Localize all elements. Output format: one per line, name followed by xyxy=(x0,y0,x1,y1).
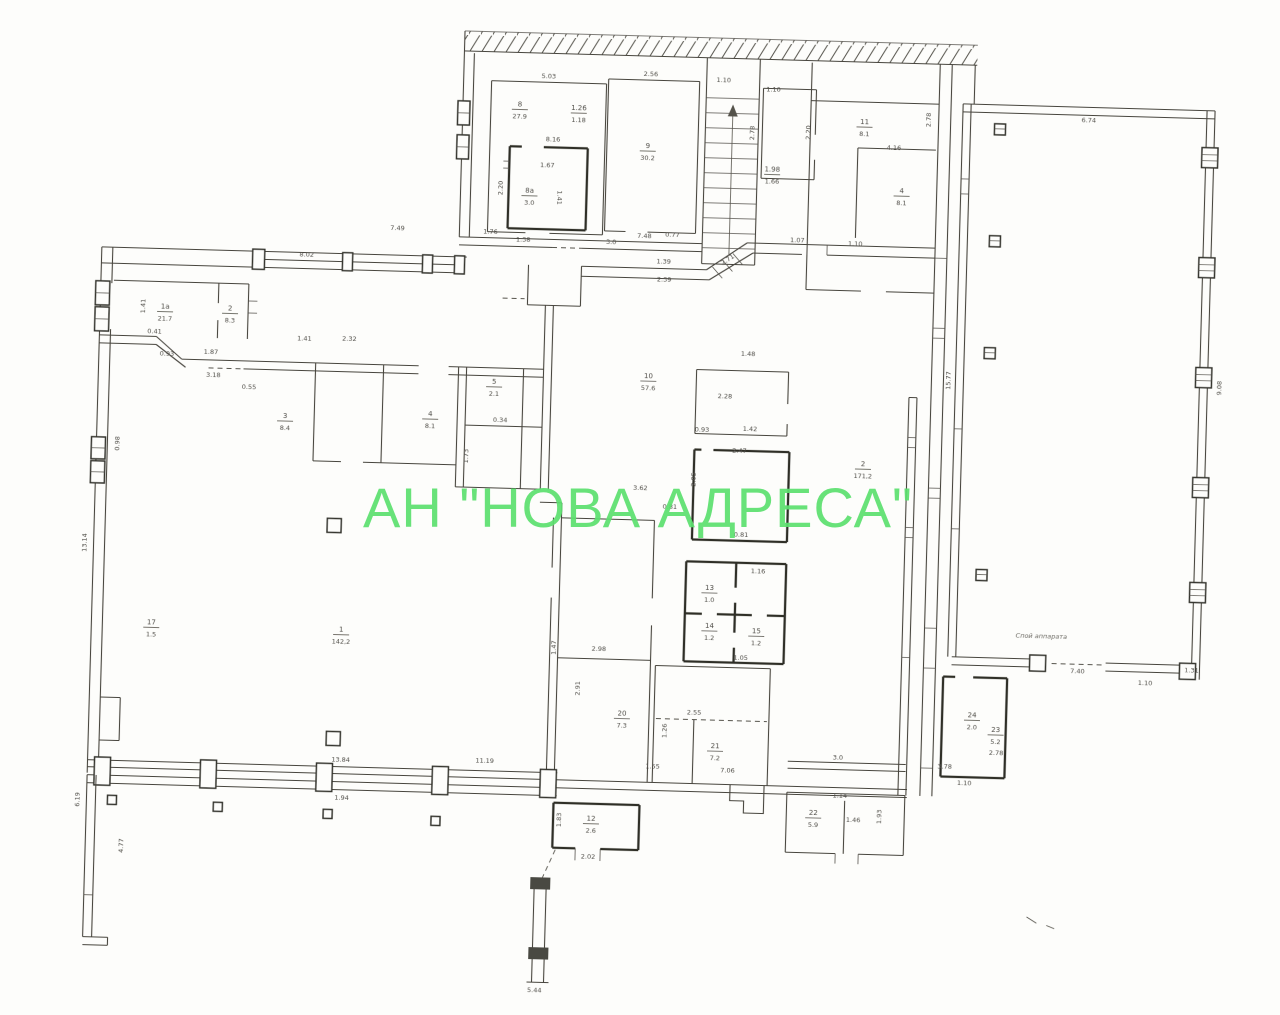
dim-text: 8.4 xyxy=(280,424,291,432)
dim-text: 20 xyxy=(617,709,626,717)
dim-text: 1.55 xyxy=(645,762,660,770)
large-hall xyxy=(99,512,346,747)
dim-text: 2.6 xyxy=(585,827,596,835)
dim-text: 3.0 xyxy=(606,238,617,246)
dim-text: 4 xyxy=(428,410,433,418)
dim-text: 2 xyxy=(861,460,866,468)
staircase xyxy=(702,58,761,265)
dim-text: 11.19 xyxy=(475,757,494,766)
top-rooms-block xyxy=(453,53,940,293)
dim-text: 7.2 xyxy=(710,754,721,762)
stray-marks xyxy=(1026,917,1054,929)
floorplan-canvas: 5.032.561.101.108.161.671.412.201.761.38… xyxy=(0,0,1280,1015)
dim-text: 0.98 xyxy=(113,436,121,451)
dim-text: 0.93 xyxy=(160,350,175,358)
dim-text: 6.19 xyxy=(73,792,81,807)
dim-text: 2.47 xyxy=(732,447,747,455)
dim-text: 2.55 xyxy=(687,708,702,716)
bottom-right-rooms xyxy=(785,672,1007,868)
dim-text: 1.48 xyxy=(741,350,756,358)
dim-text: 142,2 xyxy=(332,637,351,646)
dim-text: 22 xyxy=(809,809,818,817)
dim-text: 1.10 xyxy=(957,779,972,787)
dim-text: 1.47 xyxy=(550,640,558,655)
dim-text: 8.1 xyxy=(859,130,870,138)
bottom-annex-room xyxy=(526,802,639,985)
dim-text: 5.9 xyxy=(808,821,819,829)
dim-text: 17 xyxy=(147,618,156,626)
dim-text: 1.31 xyxy=(1184,666,1199,674)
dim-text: 11 xyxy=(860,118,869,126)
dim-text: 7.49 xyxy=(390,224,405,232)
dim-text: 1.42 xyxy=(743,425,758,433)
dim-text: 1.41 xyxy=(555,190,563,205)
dim-text: 21.7 xyxy=(158,314,173,322)
dim-text: 8.3 xyxy=(225,316,236,324)
dim-text: 2.0 xyxy=(966,723,977,731)
hall-bottom-wall xyxy=(951,653,1195,680)
dim-text: 13.14 xyxy=(80,533,89,552)
dim-text: 5.44 xyxy=(527,986,542,994)
dim-text: 4.77 xyxy=(117,838,125,853)
hall-note-label: Спой аппарата xyxy=(1016,632,1068,641)
dim-text: 1.2 xyxy=(704,634,715,642)
dim-text: 2.20 xyxy=(804,125,812,140)
dim-text: 2.56 xyxy=(644,70,659,78)
bottom-window-wall xyxy=(86,757,907,839)
dim-text: 7.3 xyxy=(616,721,627,729)
dim-text: 1.10 xyxy=(848,240,863,248)
dim-text: 2 xyxy=(228,304,233,312)
dim-text: 2.1 xyxy=(489,390,500,398)
agency-watermark-text: АН "НОВА АДРЕСА" xyxy=(363,476,913,539)
dim-text: 0.41 xyxy=(147,327,162,335)
dim-text: 2.98 xyxy=(591,645,606,653)
hall-columns xyxy=(976,124,1006,581)
dim-text: 1.14 xyxy=(832,791,847,799)
dim-text: 4.16 xyxy=(887,144,902,152)
dim-text: 1а xyxy=(161,303,170,311)
dim-text: 1.2 xyxy=(751,639,762,647)
stair-direction-arrow xyxy=(728,104,738,116)
dim-text: 9.08 xyxy=(1215,381,1223,396)
dim-text: 1.07 xyxy=(790,236,805,244)
dim-text: 3 xyxy=(283,412,288,420)
dim-text: 13 xyxy=(705,584,714,592)
centre-east-wall xyxy=(898,397,917,795)
dim-text: 8.1 xyxy=(896,199,907,207)
dim-text: 7.06 xyxy=(720,766,735,774)
dim-text: 1.98 xyxy=(764,165,780,173)
dim-text: 1.26 xyxy=(660,723,668,738)
dim-text: 14 xyxy=(705,622,715,630)
dim-text: 1.46 xyxy=(846,816,861,824)
floorplan-scan: 5.032.561.101.108.161.671.412.201.761.38… xyxy=(0,0,1280,1015)
dim-text: 2.32 xyxy=(342,335,357,343)
dim-text: 2.78 xyxy=(989,749,1004,757)
dim-text: 7.48 xyxy=(637,232,652,240)
dim-text: 15 xyxy=(752,627,761,635)
dim-text: 57.6 xyxy=(641,384,656,392)
right-hall xyxy=(947,65,1220,680)
dim-text: 8.1 xyxy=(425,422,436,430)
dim-text: 7.40 xyxy=(1070,667,1085,675)
dim-text: 1.66 xyxy=(765,177,780,185)
dim-text: 30.2 xyxy=(640,154,655,162)
dim-text: 0.93 xyxy=(695,426,710,434)
dim-text: 1.87 xyxy=(204,348,219,356)
dim-text: 1.26 xyxy=(571,104,587,112)
east-corridor-wall xyxy=(920,64,952,796)
dim-text: 1.41 xyxy=(139,299,147,314)
dim-text: 27.9 xyxy=(512,112,527,120)
dim-text: 0.77 xyxy=(665,231,680,239)
room-number-labels: 827.9930.21.261.1848.11.981.66118.11а21.… xyxy=(138,90,1021,846)
chimney-shaft xyxy=(526,849,555,983)
dim-text: 8.02 xyxy=(299,250,314,258)
dim-text: 2.91 xyxy=(574,681,582,696)
dim-text: 1.76 xyxy=(483,228,498,236)
dim-text: 3.0 xyxy=(833,753,844,761)
dim-text: 3.78 xyxy=(937,762,952,770)
dim-text: 24 xyxy=(968,711,978,719)
dim-text: 1.10 xyxy=(766,85,781,93)
dim-text: 3.0 xyxy=(524,199,535,207)
dim-text: 1.39 xyxy=(656,257,671,265)
wc-cells xyxy=(684,561,787,664)
dim-text: 1 xyxy=(339,626,344,634)
dim-text: 6.74 xyxy=(1081,116,1096,124)
dim-text: 1.38 xyxy=(516,235,531,243)
dim-text: 12 xyxy=(587,815,596,823)
dim-text: 1.83 xyxy=(555,813,563,828)
dim-text: 1.10 xyxy=(1138,679,1153,687)
dim-text: 1.94 xyxy=(334,794,349,802)
dim-text: 1.73 xyxy=(462,449,470,464)
dim-text: 8 xyxy=(518,100,523,108)
dim-text: 1.0 xyxy=(704,596,715,604)
dim-text: 3.18 xyxy=(206,371,221,379)
dim-text: 8а xyxy=(525,187,534,195)
dim-text: 8.16 xyxy=(546,135,561,143)
dim-text: 1.18 xyxy=(571,116,586,124)
dim-text: 13.84 xyxy=(331,755,350,764)
dim-text: 5.03 xyxy=(541,72,556,80)
dim-text: 1.16 xyxy=(751,567,766,575)
dim-text: 5 xyxy=(492,378,497,386)
dim-text: 1.93 xyxy=(875,809,883,824)
dim-text: 21 xyxy=(711,742,720,750)
dim-text: 1.41 xyxy=(297,334,312,342)
dim-text: 4 xyxy=(899,187,904,195)
dim-text: 2.20 xyxy=(496,181,504,196)
dim-text: 15.77 xyxy=(944,371,953,390)
dim-text: 9 xyxy=(646,142,651,150)
dim-text: 0.55 xyxy=(242,383,257,391)
dim-text: 2.39 xyxy=(657,275,672,283)
dim-text: 1.5 xyxy=(146,630,157,638)
dim-text: 2.78 xyxy=(925,113,933,128)
dim-text: 0.34 xyxy=(493,416,508,424)
dim-text: 2.28 xyxy=(718,392,733,400)
dim-text: 2.02 xyxy=(581,852,596,860)
party-wall-hatch xyxy=(464,31,977,67)
dim-text: 23 xyxy=(991,726,1000,734)
dim-text: 2.78 xyxy=(748,126,756,141)
dim-text: 10 xyxy=(644,372,653,380)
dim-text: 1.67 xyxy=(540,161,555,169)
dim-text: 1.10 xyxy=(716,76,731,84)
dim-text: 5.2 xyxy=(990,738,1001,746)
dim-text: 1.05 xyxy=(733,654,748,662)
